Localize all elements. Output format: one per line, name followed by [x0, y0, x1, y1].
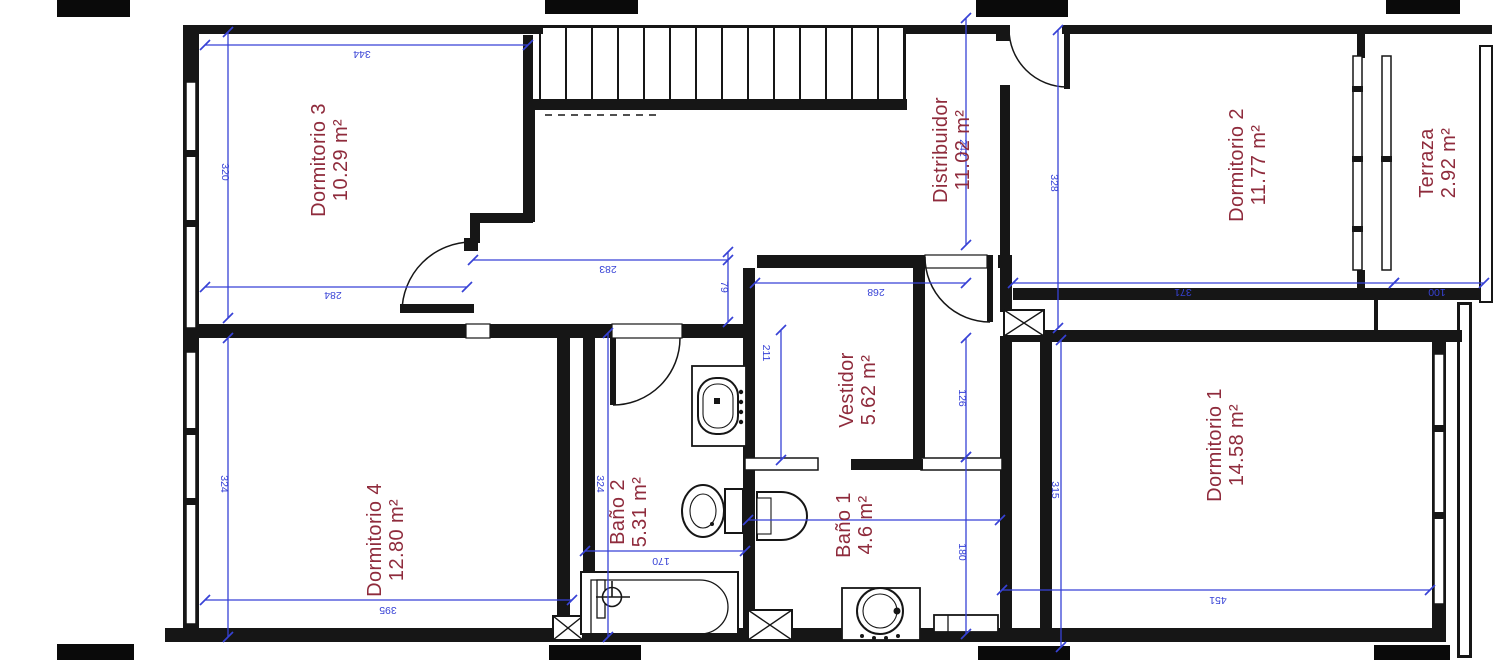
dimension-label-d170: 170: [652, 555, 670, 567]
dimension-label-d315: 315: [1049, 481, 1061, 499]
room-label-vestidor: Vestidor5.62 m²: [836, 352, 880, 427]
room-name-bano1: Baño 1: [833, 492, 855, 558]
bathtub: [581, 572, 738, 634]
shaft-x-box: [553, 616, 583, 640]
room-area-terraza: 2.92 m²: [1438, 128, 1460, 199]
door-dormitorio3: [400, 242, 474, 313]
room-name-dormitorio4: Dormitorio 4: [364, 483, 386, 597]
dimension-d320: 320: [219, 27, 233, 323]
dimension-label-d451: 451: [1209, 594, 1227, 606]
dimension-d283: 283: [468, 255, 733, 275]
room-name-terraza: Terraza: [1416, 128, 1438, 198]
room-area-vestidor: 5.62 m²: [858, 355, 880, 426]
room-area-bano1: 4.6 m²: [855, 495, 877, 554]
dimension-label-d284: 284: [324, 289, 342, 301]
dimension-label-d320: 320: [219, 163, 231, 181]
dimension-label-d211: 211: [760, 345, 772, 362]
room-area-dormitorio3: 10.29 m²: [330, 119, 352, 201]
dimension-d344: 344: [200, 40, 533, 60]
room-label-dormitorio4: Dormitorio 412.80 m²: [364, 483, 408, 597]
washbasin: [842, 588, 920, 640]
room-area-dormitorio1: 14.58 m²: [1226, 404, 1248, 486]
dimension-d211: 211: [760, 325, 786, 465]
dimension-label-d126: 126: [956, 389, 968, 407]
dimension-label-d180: 180: [956, 543, 968, 561]
dimension-d451: 451: [997, 585, 1435, 606]
dimension-label-d100: 100: [1428, 286, 1446, 298]
dimension-d284: 284: [200, 282, 472, 301]
room-label-terraza: Terraza2.92 m²: [1416, 128, 1460, 199]
window-dormitorio2-terraza: [1352, 56, 1392, 270]
dimension-label-d324_bano2: 324: [594, 475, 606, 493]
room-name-vestidor: Vestidor: [836, 352, 858, 427]
room-area-dormitorio4: 12.80 m²: [386, 499, 408, 581]
door-bano2: [610, 338, 680, 405]
shaft-x-box: [748, 610, 792, 640]
dimension-d328: 328: [1048, 25, 1063, 333]
dimension-label-d324_dorm4: 324: [218, 475, 230, 493]
room-label-bano2: Baño 25.31 m²: [607, 477, 651, 548]
room-name-dormitorio3: Dormitorio 3: [308, 103, 330, 217]
room-label-dormitorio1: Dormitorio 114.58 m²: [1204, 388, 1248, 502]
room-label-dormitorio2: Dormitorio 211.77 m²: [1226, 108, 1270, 222]
dimension-label-d79: 79: [718, 281, 730, 293]
dimension-d395: 395: [200, 595, 577, 616]
room-area-bano2: 5.31 m²: [629, 477, 651, 548]
room-label-dormitorio3: Dormitorio 310.29 m²: [308, 103, 352, 217]
dimension-d180: 180: [956, 452, 971, 639]
room-area-dormitorio2: 11.77 m²: [1248, 125, 1270, 206]
dimension-label-d328: 328: [1048, 174, 1060, 192]
dimension-label-d395: 395: [379, 604, 397, 616]
window-dormitorio1: [1432, 354, 1446, 604]
room-name-dormitorio1: Dormitorio 1: [1204, 388, 1226, 502]
dimension-label-d344: 344: [353, 48, 371, 60]
dimension-d170: 170: [580, 546, 750, 567]
room-area-distribuidor: 11.02 m²: [952, 110, 974, 191]
room-name-bano2: Baño 2: [607, 479, 629, 545]
dimension-label-d283: 283: [599, 263, 617, 275]
window-dormitorio4: [184, 352, 198, 624]
balcony-rail: [1374, 300, 1472, 658]
dimension-d79: 79: [718, 247, 733, 327]
dimension-label-d268: 268: [867, 286, 885, 298]
dimension-d126: 126: [956, 333, 971, 462]
dimension-d324_dorm4: 324: [218, 333, 233, 642]
toilet: [682, 485, 743, 537]
window-dormitorio3: [184, 82, 198, 328]
floor-plan-drawing: 3443202842837926824232837110021132417012…: [0, 0, 1500, 660]
room-label-distribuidor: Distribuidor11.02 m²: [930, 97, 974, 203]
terraza-right-wall: [1480, 46, 1492, 302]
shaft-x-box: [1004, 310, 1044, 336]
room-name-dormitorio2: Dormitorio 2: [1226, 108, 1248, 222]
room-labels: Dormitorio 310.29 m²Distribuidor11.02 m²…: [308, 97, 1460, 597]
sink-counter: [692, 366, 746, 446]
room-label-bano1: Baño 14.6 m²: [833, 492, 877, 558]
floor-plan-canvas: 3443202842837926824232837110021132417012…: [0, 0, 1500, 660]
bidet: [757, 492, 807, 540]
door-dormitorio2: [1009, 27, 1070, 89]
dimension-label-d371: 371: [1174, 286, 1192, 298]
room-name-distribuidor: Distribuidor: [930, 97, 952, 203]
